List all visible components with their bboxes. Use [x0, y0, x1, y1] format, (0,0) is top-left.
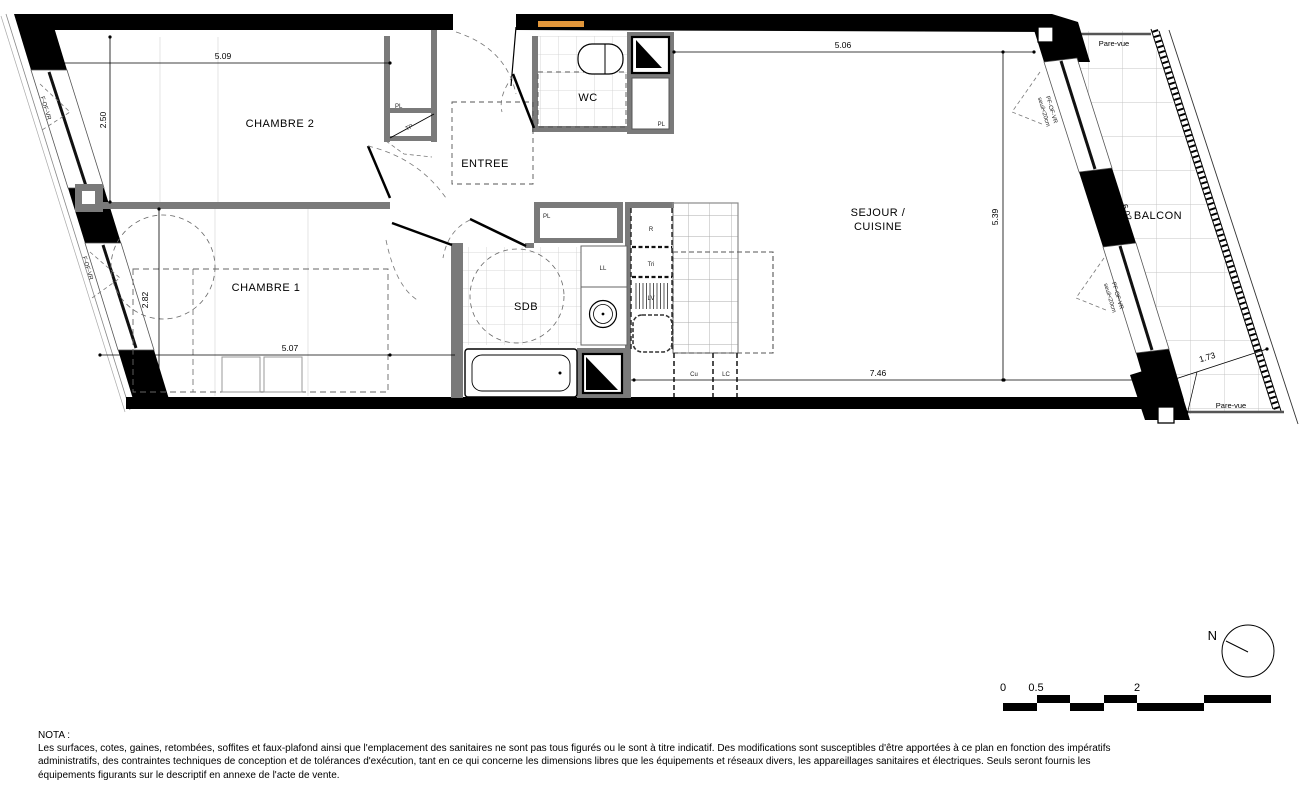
door-leaf-wc — [513, 74, 534, 128]
compass-needle — [1226, 641, 1248, 652]
closet-wc-pl-label: PL — [658, 122, 666, 128]
wall-bottom — [126, 397, 1162, 409]
wall-ch1-sdb — [451, 243, 463, 398]
dim-dot — [98, 353, 101, 356]
scale-bar: 0 0.5 2 — [1000, 682, 1271, 711]
dishwasher-label: LV — [648, 296, 655, 302]
dim-dot — [1001, 50, 1004, 53]
sdb-tiles — [463, 247, 583, 345]
room-label-sdb: SDB — [514, 301, 538, 313]
cooker-label: Cu — [690, 372, 698, 378]
nota-line-1: Les surfaces, cotes, gaines, retombées, … — [38, 742, 1298, 755]
dim-ch1-height: 2.82 — [140, 291, 150, 308]
dim-dot — [632, 378, 635, 381]
wall-notch-bottom-right — [1158, 407, 1174, 423]
nota-title: NOTA : — [38, 729, 1298, 742]
wall-sdb-closet-top — [534, 202, 623, 208]
north-compass: N — [1208, 625, 1274, 677]
entree: ENTREE — [452, 27, 533, 184]
scale-2: 2 — [1134, 682, 1140, 694]
room-label-cuisine: CUISINE — [854, 221, 902, 233]
floor-plan-page: Pare-vue Pare-vue BALCON 6.02 1.73 — [0, 0, 1303, 797]
dim-dot — [1265, 347, 1268, 350]
wall-top-right — [516, 14, 1060, 32]
wall-kitchen-top — [625, 202, 674, 208]
scale-seg — [1070, 703, 1104, 711]
wall-wc-bottom — [532, 126, 631, 132]
room-label-balcon: BALCON — [1134, 210, 1182, 222]
room-label-entree: ENTREE — [461, 158, 509, 170]
furniture-square — [222, 357, 260, 392]
chambre1: CHAMBRE 1 — [111, 209, 452, 396]
lintel-accent — [538, 21, 584, 27]
entree-zone-dashed — [452, 102, 533, 184]
north-label: N — [1208, 628, 1217, 643]
washer-box: LL — [581, 246, 627, 287]
room-label-wc: WC — [578, 92, 597, 104]
dim-ch2-width: 5.09 — [215, 51, 232, 61]
wall-notch-top-right — [1038, 27, 1053, 42]
nota-line-3: équipements figurants sur le descriptif … — [38, 769, 1298, 782]
sink-drain — [602, 313, 605, 316]
wall-sdb-closet-left — [534, 202, 540, 243]
scale-0: 0 — [1000, 682, 1006, 694]
scale-seg — [1037, 695, 1070, 703]
dim-ch1-width: 5.07 — [282, 343, 299, 353]
wall-closet-right — [431, 30, 437, 142]
floor-plan-svg: Pare-vue Pare-vue BALCON 6.02 1.73 — [0, 0, 1303, 797]
scale-seg — [1104, 695, 1137, 703]
wall-notch-inner — [82, 191, 95, 204]
bathtub-drain — [559, 372, 562, 375]
scale-seg — [1204, 695, 1271, 703]
door-leaf-chambre2 — [368, 146, 390, 198]
dim-sejour-height: 5.39 — [990, 208, 1000, 225]
dim-dot — [157, 391, 160, 394]
sink-counter — [581, 287, 627, 345]
dim-dot — [108, 35, 111, 38]
door-swing-chambre1 — [386, 240, 419, 301]
dim-dot — [388, 353, 391, 356]
pare-vue-label-bottom: Pare-vue — [1216, 401, 1246, 410]
toilet — [578, 44, 623, 74]
dim-sejour-width2: 7.46 — [870, 368, 887, 378]
kitchen-sink-dashed — [633, 315, 672, 352]
sdb-door-jamb — [525, 243, 534, 248]
chambre2: CHAMBRE 2 PL TP — [160, 37, 446, 202]
kitchen-counter — [673, 203, 738, 353]
dim-dot — [55, 61, 58, 64]
lc-label: LC — [722, 372, 730, 378]
bathtub — [465, 349, 577, 397]
tri-label: Tri — [648, 262, 655, 268]
furniture-square — [264, 357, 302, 392]
door-leaf-sdb — [470, 219, 526, 246]
wall-ch2-entree — [384, 36, 390, 142]
wall-wc-left — [532, 36, 538, 132]
nota-block: NOTA : Les surfaces, cotes, gaines, reto… — [38, 729, 1298, 782]
closet-pl-label: PL — [395, 104, 403, 110]
sejour-cuisine: SEJOUR / CUISINE R Tri LV C — [631, 203, 906, 397]
dim-dot — [1032, 50, 1035, 53]
dim-dot — [672, 50, 675, 53]
dim-dot — [1002, 378, 1005, 381]
dim-dot — [388, 61, 391, 64]
ll-label: LL — [600, 266, 607, 272]
room-label-chambre2: CHAMBRE 2 — [246, 118, 315, 130]
scale-seg — [1137, 703, 1204, 711]
sdb-closet-pl-label: PL — [543, 214, 551, 220]
dim-dot — [157, 207, 160, 210]
room-label-sejour: SEJOUR / — [851, 207, 906, 219]
dim-ch2-height: 2.50 — [98, 111, 108, 128]
room-label-chambre1: CHAMBRE 1 — [232, 282, 301, 294]
wall-sdb-closet-bottom — [534, 238, 623, 243]
wall-sdb-closet-right — [617, 206, 623, 243]
wall-ch1-ch2 — [88, 202, 390, 209]
scale-seg — [1003, 703, 1037, 711]
door-leaf-chambre1 — [392, 223, 452, 245]
fridge-label: R — [649, 227, 654, 233]
dim-dot — [108, 200, 111, 203]
wall-top-left — [48, 14, 453, 30]
pare-vue-label-top: Pare-vue — [1099, 39, 1129, 48]
scale-05: 0.5 — [1028, 682, 1043, 694]
tp-door-swing — [386, 141, 432, 157]
nota-line-2: administratifs, des contraintes techniqu… — [38, 755, 1298, 768]
kitchen-appliances: R Tri LV — [631, 208, 672, 352]
dim-sejour-width: 5.06 — [835, 40, 852, 50]
kitchen-stalls: Cu LC — [674, 353, 737, 397]
